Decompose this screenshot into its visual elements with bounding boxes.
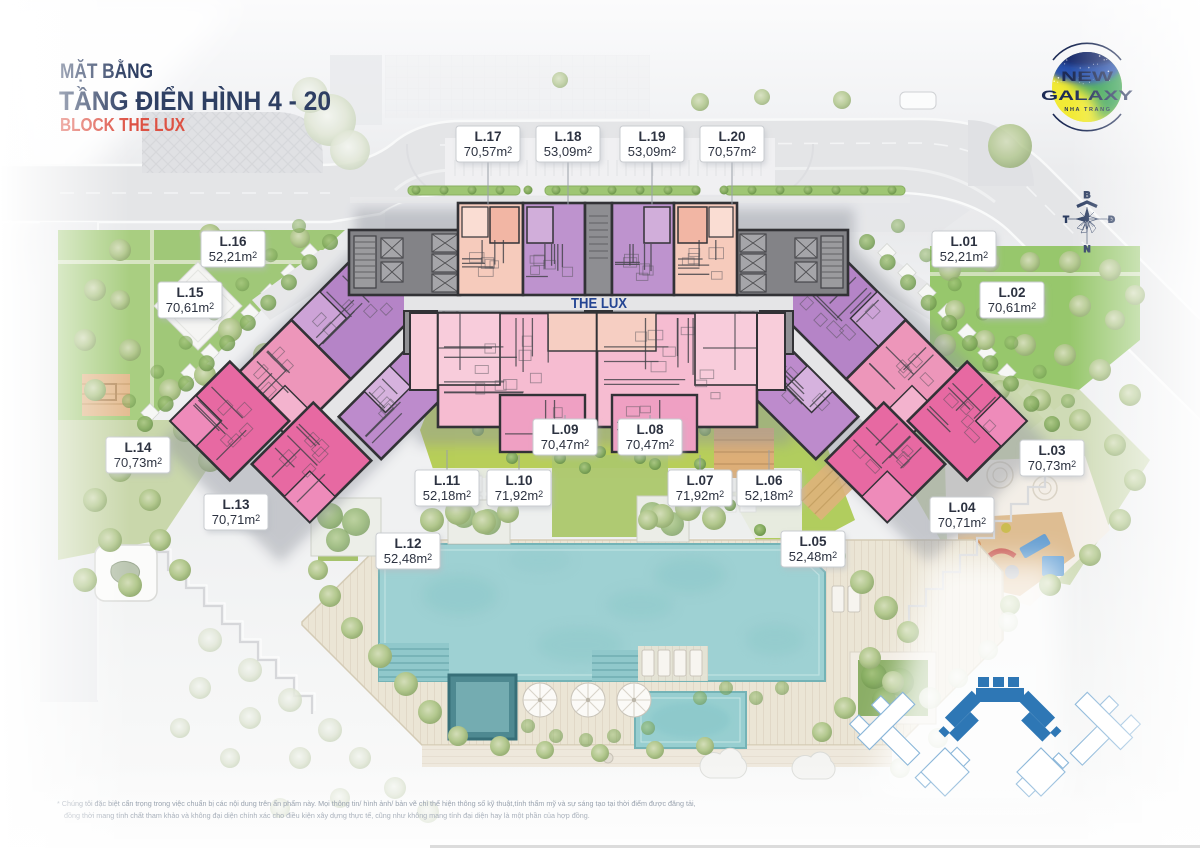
svg-text:71,92m2: 71,92m2 (495, 488, 543, 503)
svg-text:70,61m2: 70,61m2 (166, 300, 214, 315)
svg-text:L.01: L.01 (950, 234, 978, 249)
svg-text:71,92m2: 71,92m2 (676, 488, 724, 503)
svg-text:L.04: L.04 (948, 500, 976, 515)
svg-text:52,18m2: 52,18m2 (423, 488, 471, 503)
svg-text:L.13: L.13 (222, 497, 250, 512)
svg-text:53,09m2: 53,09m2 (628, 144, 676, 159)
svg-text:70,57m2: 70,57m2 (708, 144, 756, 159)
svg-text:T: T (1063, 215, 1069, 226)
svg-text:L.12: L.12 (394, 536, 421, 551)
svg-text:L.19: L.19 (638, 129, 665, 144)
svg-text:52,18m2: 52,18m2 (745, 488, 793, 503)
svg-text:70,57m2: 70,57m2 (464, 144, 512, 159)
svg-text:70,47m2: 70,47m2 (541, 437, 589, 452)
svg-text:L.11: L.11 (434, 473, 461, 488)
svg-text:L.08: L.08 (636, 422, 664, 437)
svg-text:L.15: L.15 (176, 285, 204, 300)
svg-text:L.05: L.05 (799, 534, 827, 549)
svg-text:70,73m2: 70,73m2 (1028, 458, 1076, 473)
svg-text:52,48m2: 52,48m2 (384, 551, 432, 566)
svg-text:L.07: L.07 (686, 473, 713, 488)
svg-text:L.16: L.16 (219, 234, 247, 249)
svg-text:L.06: L.06 (755, 473, 783, 488)
svg-text:L.20: L.20 (718, 129, 745, 144)
svg-text:70,47m2: 70,47m2 (626, 437, 674, 452)
svg-text:L.02: L.02 (998, 285, 1025, 300)
svg-text:53,09m2: 53,09m2 (544, 144, 592, 159)
svg-text:L.09: L.09 (551, 422, 578, 437)
svg-text:L.03: L.03 (1038, 443, 1066, 458)
svg-text:L.10: L.10 (505, 473, 532, 488)
svg-text:L.17: L.17 (474, 129, 501, 144)
svg-text:70,71m2: 70,71m2 (938, 515, 986, 530)
svg-text:52,21m2: 52,21m2 (940, 249, 988, 264)
svg-text:70,71m2: 70,71m2 (212, 512, 260, 527)
svg-text:70,61m2: 70,61m2 (988, 300, 1036, 315)
svg-text:52,21m2: 52,21m2 (209, 249, 257, 264)
svg-text:52,48m2: 52,48m2 (789, 549, 837, 564)
svg-text:L.18: L.18 (554, 129, 582, 144)
